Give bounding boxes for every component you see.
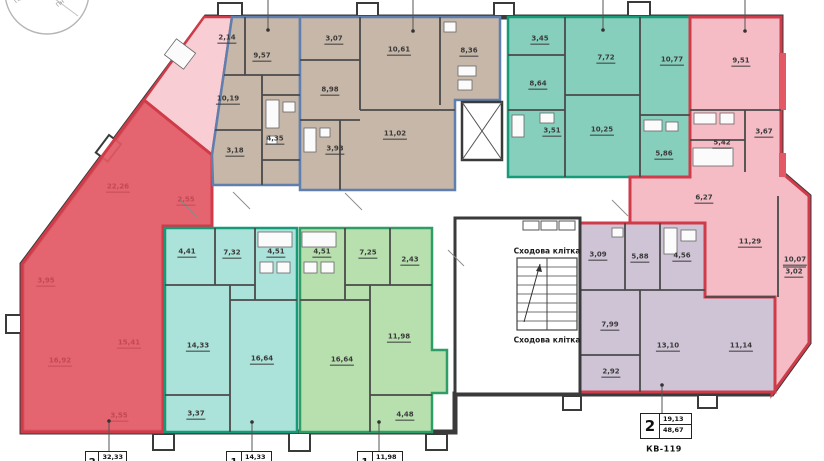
apartment-stamp-right: 2 19,13 48,67 [640, 413, 692, 439]
room-area-label: 3,45 [530, 36, 549, 45]
room-area-label: 2,92 [601, 369, 620, 378]
room-area-label: 7,99 [600, 322, 619, 331]
green-apartment-shape [300, 228, 447, 432]
room-area-label: 10,61 [387, 47, 411, 56]
room-area-label: 6,27 [694, 195, 713, 204]
room-area-label: 8,64 [528, 81, 547, 90]
room-area-label: 3,93 [325, 146, 344, 155]
room-area-label: 11,14 [729, 343, 753, 352]
room-area-label: 4,56 [672, 253, 691, 262]
room-area-label: 3,02 [784, 269, 803, 278]
room-area-label: 4,51 [266, 249, 285, 258]
room-area-label: 4,48 [395, 412, 414, 421]
apartment-rooms-count: 1 [227, 452, 242, 461]
apartment-stamp-mid1: 1 14,33 [226, 451, 272, 461]
room-area-label: 7,32 [222, 250, 241, 259]
room-area-label: 8,98 [320, 87, 339, 96]
apartment-area-value: 11,98 [373, 452, 402, 461]
room-area-label: 16,64 [330, 357, 354, 366]
room-area-label: 8,36 [459, 48, 478, 57]
room-area-label: 3,95 [36, 278, 55, 287]
room-area-label: 10,07 [783, 257, 807, 266]
apartment-rooms-count: 1 [358, 452, 373, 461]
room-area-label: 3,37 [186, 411, 205, 420]
elevator-shaft-icon [462, 102, 502, 160]
apartment-living-area: 19,13 [660, 414, 691, 425]
room-area-label: 4,41 [177, 249, 196, 258]
room-area-label: 14,33 [186, 343, 210, 352]
room-area-label: 5,86 [654, 151, 673, 160]
apartment-rooms-count: 2 [641, 414, 660, 438]
apartment-stamp-left: 2 32,33 [85, 451, 127, 461]
cyan-apartment-shape [165, 228, 297, 432]
room-area-label: 3,07 [324, 36, 343, 45]
balcony-bumps-top [218, 2, 650, 16]
stairwell-label-bottom: Сходова клітка [514, 336, 581, 345]
stairwell-label-top: Сходова клітка [514, 247, 581, 256]
room-area-label: 4,51 [312, 249, 331, 258]
apartment-total-area: 48,67 [660, 425, 691, 435]
room-area-label: 9,51 [731, 58, 750, 67]
apartment-number-caption: КВ-119 [646, 445, 682, 454]
apartment-rooms-count: 2 [86, 452, 99, 461]
room-area-label: 10,25 [590, 127, 614, 136]
room-area-label: 11,02 [383, 131, 407, 140]
floor-plan: Пн Пд 3,95 22,26 2,55 15,41 16,92 3,55 2… [0, 0, 824, 461]
compass-icon [5, 0, 89, 34]
room-area-label: 3,18 [225, 148, 244, 157]
stairs-icon [517, 258, 577, 330]
room-area-label: 11,29 [738, 239, 762, 248]
room-area-label: 15,41 [117, 340, 141, 349]
room-area-label: 3,09 [588, 252, 607, 261]
room-area-label: 7,72 [596, 55, 615, 64]
room-area-label: 4,35 [265, 136, 284, 145]
room-area-label: 22,26 [106, 184, 130, 193]
apartment-stamp-mid2: 1 11,98 [357, 451, 403, 461]
room-area-label: 16,92 [48, 358, 72, 367]
room-area-label: 2,55 [176, 197, 195, 206]
apartment-area-value: 32,33 [99, 452, 126, 461]
room-area-label: 9,57 [252, 53, 271, 62]
room-area-label: 3,67 [754, 129, 773, 138]
room-area-label: 10,77 [660, 57, 684, 66]
room-area-label: 2,14 [217, 35, 236, 44]
room-area-label: 11,98 [387, 334, 411, 343]
room-area-label: 3,51 [542, 128, 561, 137]
stairwell-block [455, 218, 580, 394]
room-area-label: 7,25 [358, 250, 377, 259]
room-area-label: 5,42 [712, 140, 731, 149]
room-area-label: 3,55 [109, 413, 128, 422]
room-area-label: 16,64 [250, 356, 274, 365]
room-area-label: 5,88 [630, 254, 649, 263]
room-area-label: 10,19 [216, 96, 240, 105]
room-area-label: 13,10 [656, 343, 680, 352]
floor-plan-canvas [0, 0, 824, 461]
room-area-label: 2,43 [400, 257, 419, 266]
apartment-area-value: 14,33 [242, 452, 271, 461]
